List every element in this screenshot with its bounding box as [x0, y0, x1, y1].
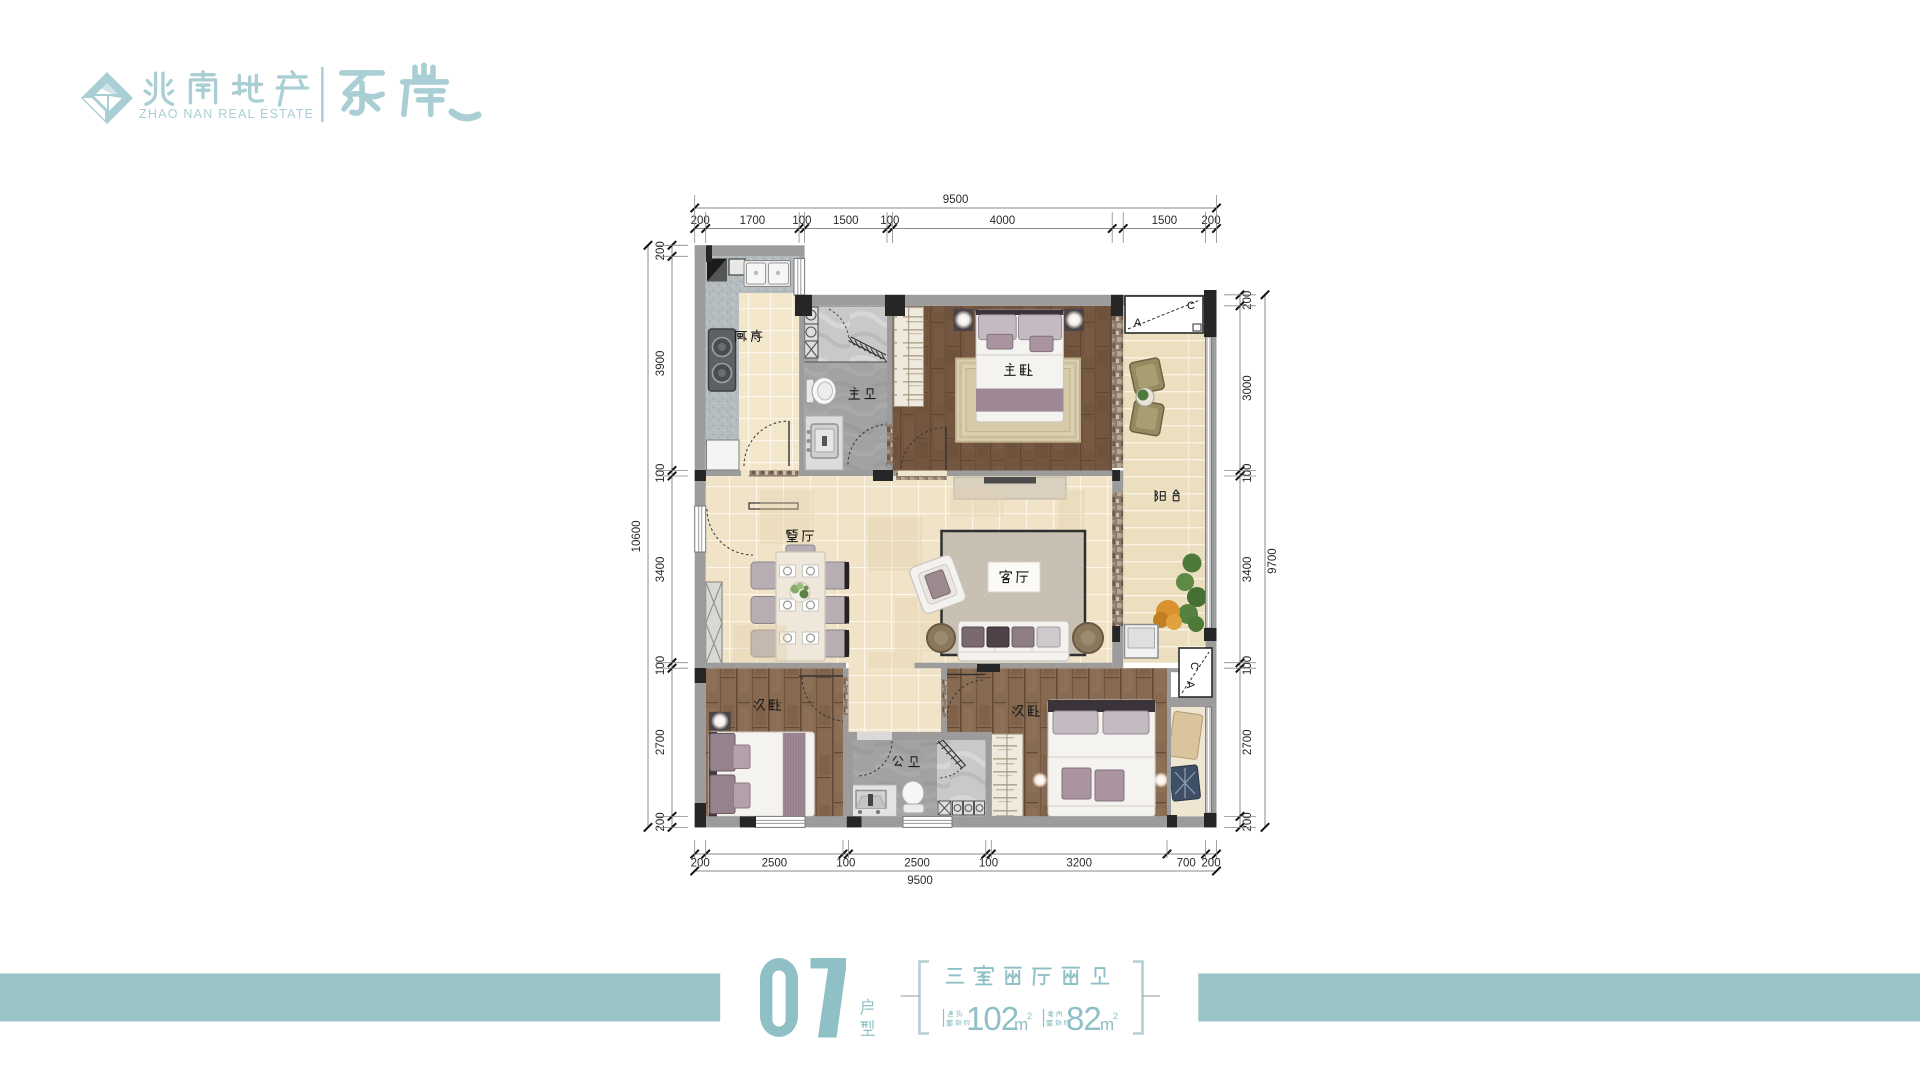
svg-text:100: 100 — [1242, 656, 1254, 675]
svg-text:100: 100 — [655, 656, 667, 675]
svg-text:3400: 3400 — [1242, 557, 1254, 583]
svg-text:200: 200 — [1242, 812, 1254, 831]
svg-text:82: 82 — [1066, 1000, 1101, 1037]
svg-text:A: A — [1184, 681, 1196, 689]
svg-text:3400: 3400 — [655, 557, 667, 583]
svg-text:3200: 3200 — [1066, 858, 1092, 870]
svg-text:3900: 3900 — [655, 351, 667, 377]
svg-text:100: 100 — [1242, 464, 1254, 483]
svg-text:200: 200 — [1242, 291, 1254, 310]
svg-text:100: 100 — [979, 858, 998, 870]
svg-text:100: 100 — [792, 215, 811, 227]
svg-text:C: C — [1187, 300, 1195, 312]
svg-text:1700: 1700 — [740, 215, 766, 227]
svg-text:100: 100 — [655, 464, 667, 483]
svg-text:100: 100 — [836, 858, 855, 870]
svg-text:9500: 9500 — [907, 875, 933, 887]
svg-text:2500: 2500 — [762, 858, 788, 870]
svg-text:10600: 10600 — [631, 520, 643, 552]
svg-text:100: 100 — [880, 215, 899, 227]
svg-text:700: 700 — [1177, 858, 1196, 870]
svg-text:102: 102 — [966, 1000, 1018, 1037]
svg-text:200: 200 — [1201, 215, 1220, 227]
svg-text:1500: 1500 — [833, 215, 859, 227]
svg-text:200: 200 — [691, 858, 710, 870]
svg-text:ZHAO NAN REAL ESTATE: ZHAO NAN REAL ESTATE — [139, 107, 313, 121]
svg-text:200: 200 — [691, 215, 710, 227]
svg-text:2: 2 — [1113, 1011, 1118, 1021]
svg-text:200: 200 — [655, 241, 667, 260]
svg-text:4000: 4000 — [990, 215, 1016, 227]
svg-text:9700: 9700 — [1267, 548, 1279, 574]
svg-text:2700: 2700 — [655, 730, 667, 756]
svg-text:3000: 3000 — [1242, 375, 1254, 401]
svg-text:2700: 2700 — [1242, 730, 1254, 756]
svg-text:1500: 1500 — [1152, 215, 1178, 227]
svg-text:2500: 2500 — [904, 858, 930, 870]
svg-text:9500: 9500 — [943, 194, 969, 206]
svg-text:200: 200 — [1201, 858, 1220, 870]
svg-text:A: A — [1134, 317, 1142, 329]
svg-text:C: C — [1188, 662, 1200, 670]
svg-text:200: 200 — [655, 812, 667, 831]
svg-text:2: 2 — [1027, 1011, 1032, 1021]
